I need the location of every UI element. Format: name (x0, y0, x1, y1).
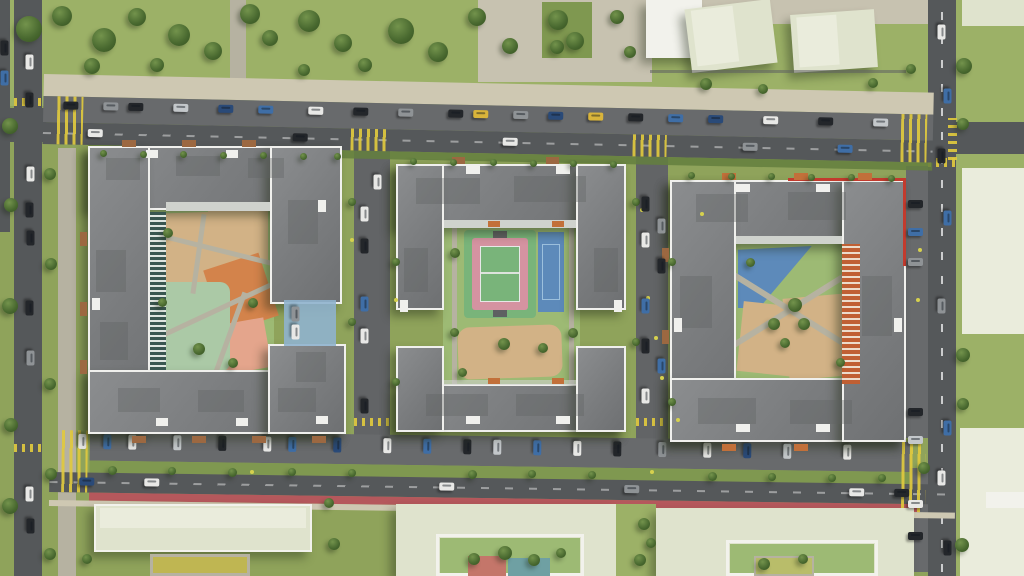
tree (468, 8, 486, 26)
car (938, 25, 946, 40)
car (642, 339, 650, 354)
tree (808, 174, 815, 181)
car (628, 113, 643, 121)
entrance-canopy (546, 157, 559, 164)
car (938, 149, 946, 164)
tree (788, 298, 802, 312)
facade-left-north (166, 202, 270, 211)
goal-north (493, 231, 507, 238)
car (26, 93, 34, 108)
car (894, 489, 909, 497)
roof-hatch (736, 424, 750, 432)
roof-hatch (894, 318, 902, 332)
roof-hatch (556, 416, 570, 424)
tree (45, 468, 57, 480)
roof-hatch (316, 416, 328, 424)
car (642, 233, 650, 248)
fence-north (650, 70, 906, 73)
tree (2, 298, 18, 314)
car (361, 239, 369, 254)
tree (150, 58, 164, 72)
flower-patch (700, 212, 704, 216)
car (78, 434, 86, 449)
tree (140, 151, 147, 158)
field-right-mid (962, 168, 1024, 334)
roof-detail (680, 276, 712, 328)
entrance-canopy (80, 360, 87, 374)
tree (328, 538, 340, 550)
car (361, 399, 369, 414)
roof-hatch (92, 298, 100, 310)
car (333, 437, 341, 452)
tree (410, 158, 417, 165)
tree (624, 46, 636, 58)
tree (108, 466, 117, 475)
roof-detail (862, 276, 892, 336)
car (658, 442, 666, 457)
tree (888, 175, 895, 182)
car (668, 114, 683, 122)
roof-hatch (400, 300, 408, 312)
tree (44, 378, 56, 390)
car (383, 438, 391, 453)
tree (128, 8, 146, 26)
block-middle-sw-arm (396, 346, 444, 432)
building-south-1-ridge (100, 508, 306, 528)
tree (632, 198, 640, 206)
tree (566, 32, 584, 50)
tree (2, 118, 18, 134)
entrance-canopy (80, 302, 87, 316)
roof-detail (296, 352, 326, 382)
tree (348, 469, 356, 477)
roof-detail (288, 200, 318, 244)
car (27, 519, 35, 534)
tree (450, 248, 460, 258)
tree (610, 10, 624, 24)
tree (568, 328, 578, 338)
flower-patch (660, 376, 664, 380)
roof-detail (594, 248, 618, 292)
tree (700, 78, 712, 90)
car (642, 197, 650, 212)
tree (204, 42, 222, 60)
tree (52, 6, 72, 26)
entrance-canopy (858, 173, 872, 180)
tree (528, 554, 540, 566)
roof-hatch (556, 166, 570, 174)
crosswalk-street-c (636, 418, 668, 426)
tree (16, 16, 42, 42)
car (624, 485, 639, 493)
building-sliver-right (986, 492, 1024, 508)
car (103, 102, 118, 110)
tree (610, 161, 617, 168)
car (173, 104, 188, 112)
roof-detail (278, 388, 316, 412)
car (613, 441, 621, 456)
car (27, 231, 35, 246)
tree (392, 258, 400, 266)
crosswalk-right-2 (948, 118, 957, 160)
car (908, 436, 923, 444)
roof-detail (198, 390, 244, 412)
entrance-canopy (794, 173, 808, 180)
crosswalk-street-b (354, 418, 390, 426)
roof-hatch (466, 416, 480, 424)
flower-patch (676, 418, 680, 422)
tree (158, 298, 167, 307)
car (88, 129, 103, 137)
entrance-canopy (794, 444, 808, 451)
car (944, 421, 952, 436)
car (292, 307, 300, 322)
car (783, 444, 791, 459)
tree (878, 474, 886, 482)
car (873, 118, 888, 126)
roof-hatch (614, 300, 622, 312)
tree (84, 58, 100, 74)
tree (918, 462, 930, 474)
roof-hatch (226, 150, 238, 158)
crosswalk-top-c (632, 134, 666, 157)
tree (906, 64, 916, 74)
car (26, 203, 34, 218)
car (908, 228, 923, 236)
tree (334, 153, 341, 160)
car (423, 439, 431, 454)
sports-court-south (150, 554, 250, 576)
car (708, 115, 723, 123)
car (743, 143, 758, 151)
tree (828, 474, 836, 482)
entrance-canopy (80, 232, 87, 246)
roof-detail (788, 192, 846, 220)
aerial-residential-complex (0, 0, 1024, 576)
tree (240, 4, 260, 24)
tree (392, 378, 400, 386)
car (838, 145, 853, 153)
car (144, 478, 159, 486)
sports-field-midline (480, 272, 520, 274)
car (288, 437, 296, 452)
tree (768, 318, 780, 330)
tree (4, 198, 18, 212)
tree (180, 151, 187, 158)
car (658, 359, 666, 374)
facade-right-north (736, 236, 842, 244)
tree (44, 168, 56, 180)
tree (428, 42, 448, 62)
tree (498, 546, 512, 560)
crosswalk-left-bottom (14, 444, 42, 452)
street-left-middle (354, 140, 390, 446)
car (128, 103, 143, 111)
tree (780, 338, 790, 348)
entrance-canopy (552, 221, 564, 227)
tree (334, 34, 352, 52)
entrance-canopy (488, 221, 500, 227)
tree (768, 173, 775, 180)
car (293, 133, 308, 141)
tree (193, 343, 205, 355)
roof-detail (514, 176, 586, 202)
tree (468, 553, 480, 565)
car (218, 105, 233, 113)
flower-patch (350, 238, 354, 242)
car (493, 440, 501, 455)
roof-detail (698, 398, 756, 424)
pedestrian-path-left (58, 148, 76, 576)
car (588, 112, 603, 120)
entrance-canopy (182, 140, 196, 147)
tree (556, 548, 566, 558)
roof-hatch (236, 418, 248, 426)
roof-hatch (736, 184, 750, 192)
tree (746, 258, 755, 267)
tree (468, 470, 477, 479)
car (361, 207, 369, 222)
parapet-red-right (903, 180, 906, 266)
car (103, 434, 111, 449)
tree (4, 418, 18, 432)
tree (248, 298, 258, 308)
car (642, 299, 650, 314)
tree (324, 498, 334, 508)
tree (646, 538, 656, 548)
tree (262, 30, 278, 46)
roof-detail (516, 394, 584, 416)
flower-patch (394, 298, 398, 302)
car (533, 440, 541, 455)
block-middle-se-arm (576, 346, 626, 432)
car (26, 487, 34, 502)
tree (44, 548, 56, 560)
car (938, 299, 946, 314)
tree (300, 153, 307, 160)
tree (528, 470, 536, 478)
car (843, 445, 851, 460)
goal-south (493, 310, 507, 317)
entrance-canopy (122, 140, 136, 147)
tree (502, 38, 518, 54)
tree (668, 398, 676, 406)
flower-patch (654, 336, 658, 340)
crosswalk-top-east (900, 114, 927, 163)
roof-hatch (318, 200, 326, 212)
car (642, 389, 650, 404)
car (908, 408, 923, 416)
roof-detail (106, 158, 140, 180)
car (658, 259, 666, 274)
car (374, 175, 382, 190)
roof-detail (416, 178, 480, 204)
roof-hatch (146, 150, 158, 158)
tree (490, 159, 497, 166)
roof-detail (100, 322, 128, 360)
tree (570, 160, 577, 167)
car (818, 117, 833, 125)
roof-hatch (156, 418, 168, 426)
building-north-2-ridge (691, 6, 740, 67)
tree (758, 84, 768, 94)
car (908, 258, 923, 266)
flower-patch (916, 298, 920, 302)
tree (688, 172, 695, 179)
building-north-3-ridge (796, 15, 839, 68)
tree (358, 58, 372, 72)
tree (638, 518, 650, 530)
car (944, 89, 952, 104)
entrance-canopy (192, 436, 206, 443)
car (173, 435, 181, 450)
tree (848, 174, 855, 181)
roof-hatch (466, 166, 480, 174)
tree (168, 467, 176, 475)
tree (82, 554, 92, 564)
entrance-canopy (488, 378, 500, 384)
roof-detail (426, 394, 488, 416)
tree (956, 58, 972, 74)
car (439, 482, 454, 490)
entrance-canopy (552, 378, 564, 384)
car (849, 488, 864, 496)
tree (955, 538, 969, 552)
tree (288, 468, 296, 476)
car (908, 200, 923, 208)
car (473, 110, 488, 118)
car (79, 477, 94, 485)
car (27, 351, 35, 366)
tree (588, 471, 596, 479)
car (398, 108, 413, 116)
roof-detail (404, 248, 428, 292)
car (513, 111, 528, 119)
car (573, 441, 581, 456)
field-right-top (962, 0, 1024, 26)
tree (668, 258, 676, 266)
car (361, 329, 369, 344)
roof-hatch (674, 318, 682, 332)
car (361, 297, 369, 312)
tree (728, 173, 735, 180)
tree (957, 118, 969, 130)
tree (348, 198, 356, 206)
roof-detail (96, 250, 126, 292)
tree (450, 328, 459, 337)
car (944, 541, 952, 556)
roof-hatch (816, 424, 830, 432)
car (448, 109, 463, 117)
car (944, 211, 952, 226)
car (1, 71, 9, 86)
tree (550, 40, 564, 54)
basketball-court-marks (542, 244, 560, 300)
playground-sand-middle (457, 324, 563, 380)
tree (260, 152, 267, 159)
car (743, 443, 751, 458)
tree (450, 159, 457, 166)
entrance-canopy (312, 436, 326, 443)
car (27, 167, 35, 182)
tree (228, 468, 237, 477)
roof-detail (118, 388, 160, 412)
entrance-canopy (662, 330, 669, 344)
car (308, 107, 323, 115)
flower-patch (918, 248, 922, 252)
car (292, 325, 300, 340)
tree (348, 318, 356, 326)
tree (298, 64, 310, 76)
tree (163, 228, 173, 238)
flower-patch (650, 470, 654, 474)
car (938, 471, 946, 486)
tree (458, 368, 467, 377)
car (908, 532, 923, 540)
tree (957, 398, 969, 410)
tree (548, 10, 568, 30)
car (26, 301, 34, 316)
tree (228, 358, 238, 368)
car (548, 112, 563, 120)
car (218, 436, 226, 451)
car (463, 439, 471, 454)
roof-detail (696, 194, 748, 222)
tree (836, 358, 845, 367)
car (658, 219, 666, 234)
car (258, 105, 273, 113)
tree (538, 343, 548, 353)
tree (768, 473, 776, 481)
tree (100, 150, 107, 157)
crosswalk-top-b (350, 128, 386, 151)
sports-field-inner (480, 246, 520, 302)
roof-detail (176, 156, 220, 176)
roof-detail (248, 158, 284, 178)
car (908, 500, 923, 508)
tree (868, 78, 878, 88)
car (1, 41, 9, 56)
tree (798, 554, 808, 564)
entrance-canopy (242, 140, 256, 147)
tree (2, 498, 18, 514)
flower-patch (250, 470, 254, 474)
car (353, 107, 368, 115)
tree (298, 10, 320, 32)
tree (956, 348, 970, 362)
roof-hatch (816, 184, 830, 192)
roof-detail (790, 400, 852, 424)
tree (168, 24, 190, 46)
car (703, 443, 711, 458)
car (763, 116, 778, 124)
tree (498, 338, 510, 350)
car (26, 55, 34, 70)
tree (92, 28, 116, 52)
car (503, 138, 518, 146)
tree (45, 258, 57, 270)
tree (798, 318, 810, 330)
car (63, 101, 78, 109)
tree (220, 152, 227, 159)
tree (388, 18, 414, 44)
entrance-canopy (252, 436, 266, 443)
tree (634, 554, 646, 566)
tree (530, 160, 537, 167)
entrance-canopy (132, 436, 146, 443)
tree (708, 472, 717, 481)
entrance-canopy (722, 444, 736, 451)
